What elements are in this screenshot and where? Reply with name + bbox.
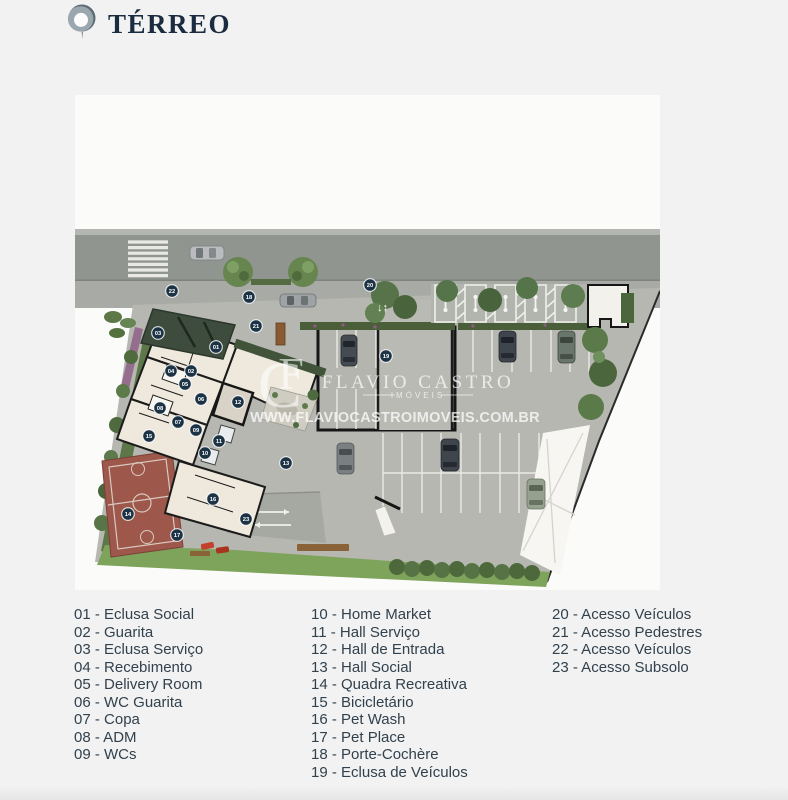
legend-item: 12 - Hall de Entrada: [311, 641, 541, 659]
svg-text:06: 06: [198, 397, 205, 403]
watermark-brand: FLAVIO CASTRO: [322, 372, 514, 393]
plan-badge: 15: [143, 430, 156, 443]
legend-column-3: 20 - Acesso Veículos21 - Acesso Pedestre…: [552, 606, 777, 676]
pergola-deck: [297, 544, 349, 551]
bottom-shade: [0, 786, 788, 800]
plan-badge: 21: [250, 320, 263, 333]
plan-badge: 03: [152, 327, 165, 340]
svg-text:21: 21: [253, 324, 260, 330]
plan-badge: 13: [280, 457, 293, 470]
plan-badge: 09: [190, 424, 203, 437]
car-icon: [499, 331, 516, 362]
legend-item: 09 - WCs: [74, 746, 299, 764]
svg-text:02: 02: [188, 369, 194, 375]
legend-item: 08 - ADM: [74, 729, 299, 747]
plan-badge: 05: [179, 378, 192, 391]
car-icon: [527, 479, 545, 509]
wood-totem: [276, 323, 285, 345]
watermark-url: WWW.FLAVIOCASTROIMOVEIS.COM.BR: [250, 410, 540, 426]
legend-item: 23 - Acesso Subsolo: [552, 659, 777, 677]
svg-text:18: 18: [246, 295, 253, 301]
svg-text:03: 03: [155, 331, 162, 337]
legend-item: 20 - Acesso Veículos: [552, 606, 777, 624]
svg-text:08: 08: [157, 406, 164, 412]
site-plan-drawing: ↓↑ 0102030405060708091011121314151617181…: [75, 95, 660, 590]
plan-badge: 01: [210, 341, 223, 354]
svg-text:04: 04: [168, 369, 175, 375]
plan-badge: 23: [240, 513, 253, 526]
plan-badge: 20: [364, 279, 377, 292]
legend-item: 01 - Eclusa Social: [74, 606, 299, 624]
watermark-brand-sub: IMÓVEIS: [391, 391, 445, 400]
two-way-arrow: ↓↑: [377, 302, 388, 314]
plan-badge: 10: [199, 447, 212, 460]
svg-text:13: 13: [283, 461, 290, 467]
plan-badge: 16: [207, 493, 220, 506]
plan-badge: 07: [172, 416, 185, 429]
car-icon: [280, 294, 316, 307]
legend-item: 04 - Recebimento: [74, 659, 299, 677]
legend-item: 06 - WC Guarita: [74, 694, 299, 712]
legend-item: 18 - Porte-Cochère: [311, 746, 541, 764]
plan-badge: 14: [122, 508, 135, 521]
legend-item: 14 - Quadra Recreativa: [311, 676, 541, 694]
watermark-monogram-f: F: [278, 348, 304, 399]
plan-badge: 22: [166, 285, 179, 298]
plan-badge: 08: [154, 402, 167, 415]
plan-badge: 11: [213, 435, 226, 448]
svg-text:01: 01: [213, 345, 220, 351]
street: [75, 229, 660, 282]
car-icon: [337, 443, 354, 474]
plan-badge: 12: [232, 396, 245, 409]
legend-item: 22 - Acesso Veículos: [552, 641, 777, 659]
svg-text:07: 07: [175, 420, 181, 426]
svg-text:16: 16: [210, 497, 217, 503]
page-header: TÉRREO: [62, 0, 231, 48]
crosswalk: [128, 242, 168, 276]
svg-text:17: 17: [174, 533, 180, 539]
car-icon: [558, 331, 575, 363]
svg-text:05: 05: [182, 382, 189, 388]
plan-badge: 04: [165, 365, 178, 378]
legend-item: 16 - Pet Wash: [311, 711, 541, 729]
car-icon: [441, 439, 459, 471]
plan-badge: 19: [380, 350, 393, 363]
rear-hedge: [621, 293, 634, 323]
svg-text:23: 23: [243, 517, 250, 523]
legend-item: 05 - Delivery Room: [74, 676, 299, 694]
svg-text:15: 15: [146, 434, 153, 440]
svg-text:20: 20: [367, 283, 373, 289]
legend-item: 13 - Hall Social: [311, 659, 541, 677]
legend-column-2: 10 - Home Market11 - Hall Serviço12 - Ha…: [311, 606, 541, 781]
legend-item: 19 - Eclusa de Veículos: [311, 764, 541, 782]
legend-item: 07 - Copa: [74, 711, 299, 729]
legend-item: 03 - Eclusa Serviço: [74, 641, 299, 659]
svg-text:22: 22: [169, 289, 175, 295]
svg-text:10: 10: [202, 451, 208, 457]
legend-item: 21 - Acesso Pedestres: [552, 624, 777, 642]
street-car-icon: [190, 246, 224, 260]
legend-item: 17 - Pet Place: [311, 729, 541, 747]
bench: [190, 551, 210, 556]
plan-badge: 18: [243, 291, 256, 304]
legend-item: 10 - Home Market: [311, 606, 541, 624]
legend-item: 15 - Bicicletário: [311, 694, 541, 712]
plan-badge: 02: [185, 365, 198, 378]
car-icon: [341, 335, 357, 366]
legend-item: 11 - Hall Serviço: [311, 624, 541, 642]
svg-text:19: 19: [383, 354, 390, 360]
legend-item: 02 - Guarita: [74, 624, 299, 642]
plan-badge: 17: [171, 529, 184, 542]
brand-pin-icon: [62, 1, 102, 47]
svg-text:14: 14: [125, 512, 132, 518]
page-title: TÉRREO: [108, 9, 231, 40]
svg-text:11: 11: [216, 439, 223, 445]
legend-column-1: 01 - Eclusa Social02 - Guarita03 - Eclus…: [74, 606, 299, 764]
site-plan: ↓↑ 0102030405060708091011121314151617181…: [75, 95, 660, 590]
svg-text:09: 09: [193, 428, 200, 434]
plan-badge: 06: [195, 393, 208, 406]
svg-text:12: 12: [235, 400, 241, 406]
